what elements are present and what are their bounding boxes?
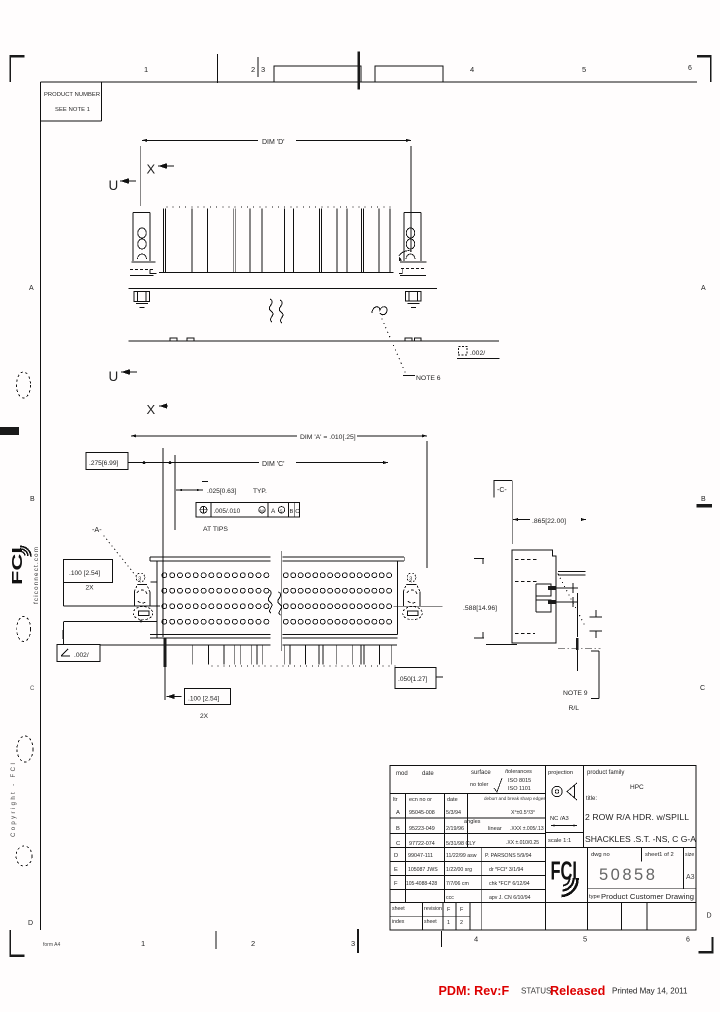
svg-text:A: A — [29, 285, 34, 292]
svg-text:2: 2 — [251, 65, 255, 74]
svg-text:3: 3 — [409, 576, 412, 582]
svg-text:2: 2 — [251, 939, 255, 948]
svg-text:mod: mod — [396, 771, 408, 777]
svg-text:1: 1 — [141, 939, 145, 948]
svg-text:D: D — [394, 853, 398, 859]
svg-text:no toler: no toler — [470, 782, 489, 788]
svg-text:DIM 'A' = .010[.25]: DIM 'A' = .010[.25] — [300, 434, 356, 441]
svg-text:NC /A3: NC /A3 — [550, 816, 569, 822]
svg-text:.002/: .002/ — [470, 350, 485, 357]
svg-text:STATUS:: STATUS: — [521, 987, 554, 996]
svg-text:form A4: form A4 — [43, 942, 60, 948]
svg-text:.025[0.63]: .025[0.63] — [207, 488, 236, 495]
svg-text:5: 5 — [583, 935, 587, 944]
svg-text:C: C — [295, 509, 299, 515]
svg-text:scale 1:1: scale 1:1 — [548, 838, 571, 844]
svg-text:M: M — [260, 508, 264, 513]
svg-text:X: X — [147, 162, 156, 177]
svg-text:C: C — [396, 841, 400, 847]
svg-text:95223-049: 95223-049 — [409, 826, 435, 832]
svg-text:PDM: Rev:F: PDM: Rev:F — [439, 984, 510, 998]
svg-text:E: E — [394, 867, 398, 873]
svg-text:apv J. CN 6/10/94: apv J. CN 6/10/94 — [489, 895, 531, 901]
svg-text:.865[22.00]: .865[22.00] — [532, 518, 566, 525]
svg-text:NOTE 9: NOTE 9 — [563, 690, 588, 697]
svg-text:DIM 'D': DIM 'D' — [262, 139, 285, 146]
svg-text:B: B — [290, 509, 294, 515]
svg-text:deburr and break sharp edges: deburr and break sharp edges — [484, 796, 546, 801]
svg-text:Released: Released — [550, 984, 605, 998]
svg-text:type: type — [589, 894, 600, 900]
svg-text:sheet: sheet — [392, 906, 405, 912]
svg-text:5/3/94: 5/3/94 — [446, 810, 461, 816]
svg-text:NOTE 6: NOTE 6 — [416, 375, 441, 382]
svg-text:ISO 8015: ISO 8015 — [508, 778, 531, 784]
svg-text:X: X — [147, 402, 156, 417]
svg-text:ccc: ccc — [446, 895, 454, 901]
svg-text:A: A — [271, 508, 276, 515]
svg-text:chk *FCI* 6/12/94: chk *FCI* 6/12/94 — [489, 881, 530, 887]
svg-text:5/31/98 CLY: 5/31/98 CLY — [446, 841, 476, 847]
svg-text:projection: projection — [548, 770, 573, 776]
svg-text:SEE NOTE 1: SEE NOTE 1 — [55, 107, 90, 113]
svg-text:.588[14.96]: .588[14.96] — [463, 605, 497, 612]
svg-text:4: 4 — [474, 935, 478, 944]
svg-text:11/22/99 asw: 11/22/99 asw — [446, 853, 477, 859]
svg-text:6: 6 — [686, 937, 690, 944]
svg-text:title:: title: — [586, 796, 597, 802]
svg-text:sheet: sheet — [424, 919, 437, 925]
svg-text:F: F — [394, 881, 398, 887]
svg-text:B: B — [30, 496, 35, 503]
svg-text:2X: 2X — [200, 713, 209, 720]
svg-text:angles: angles — [464, 819, 481, 825]
svg-text:SHACKLES .S.T. -NS, C G-A: SHACKLES .S.T. -NS, C G-A — [585, 834, 696, 844]
svg-text:.002/: .002/ — [74, 652, 89, 659]
svg-text:index: index — [392, 919, 405, 925]
svg-text:.100 [2.54]: .100 [2.54] — [69, 570, 100, 577]
svg-text:.050[1.27]: .050[1.27] — [398, 676, 427, 683]
svg-text:revision: revision — [424, 906, 442, 912]
svg-text:105087 JWS: 105087 JWS — [408, 867, 438, 873]
svg-text:3: 3 — [261, 65, 265, 74]
svg-text:-C-: -C- — [497, 487, 507, 494]
svg-text:DIM 'C': DIM 'C' — [262, 461, 285, 468]
svg-text:A: A — [701, 285, 706, 292]
svg-text:.XX ±.010/0.25: .XX ±.010/0.25 — [506, 840, 539, 846]
svg-text:date: date — [447, 797, 458, 803]
svg-text:3: 3 — [138, 576, 141, 582]
svg-text:6: 6 — [688, 65, 692, 72]
svg-text:U: U — [109, 369, 119, 384]
svg-text:PRODUCT NUMBER: PRODUCT NUMBER — [44, 92, 100, 98]
svg-text:97722-074: 97722-074 — [409, 841, 435, 847]
svg-text:/tolerances: /tolerances — [505, 769, 532, 775]
svg-text:99047-111: 99047-111 — [408, 853, 433, 859]
svg-text:.XXX ±.005/.13: .XXX ±.005/.13 — [510, 826, 544, 832]
svg-text:A3: A3 — [686, 874, 695, 881]
svg-text:1: 1 — [447, 920, 450, 926]
svg-text:2/19/96: 2/19/96 — [446, 826, 464, 832]
svg-text:D: D — [707, 913, 712, 920]
svg-text:C: C — [700, 685, 705, 692]
svg-text:1: 1 — [144, 65, 148, 74]
svg-text:dr *FCI* 3/1/94: dr *FCI* 3/1/94 — [489, 867, 523, 873]
svg-text:S: S — [280, 508, 283, 513]
svg-text:5: 5 — [582, 65, 586, 74]
svg-text:2 ROW R/A HDR. w/SPILL: 2 ROW R/A HDR. w/SPILL — [585, 812, 689, 822]
svg-text:.100 [2.54]: .100 [2.54] — [188, 696, 219, 703]
svg-text:Printed May 14, 2011: Printed May 14, 2011 — [612, 987, 688, 996]
svg-text:7/7/06 cm: 7/7/06 cm — [446, 881, 469, 887]
svg-text:ISO 1101: ISO 1101 — [508, 786, 531, 792]
svg-text:U: U — [109, 178, 119, 193]
svg-text:B: B — [396, 826, 400, 832]
svg-text:95045-008: 95045-008 — [409, 810, 435, 816]
svg-text:Product Customer Drawing: Product Customer Drawing — [601, 892, 694, 901]
svg-text:A: A — [396, 810, 400, 816]
svg-text:.275[6.99]: .275[6.99] — [89, 460, 118, 467]
svg-text:R/L: R/L — [569, 705, 580, 712]
svg-text:sheet1 of 2: sheet1 of 2 — [645, 852, 674, 858]
svg-text:2X: 2X — [86, 585, 95, 592]
svg-text:TYP.: TYP. — [253, 488, 267, 495]
svg-text:AT TIPS: AT TIPS — [203, 526, 228, 533]
svg-text:ecn no or: ecn no or — [409, 797, 432, 803]
svg-text:4: 4 — [470, 65, 474, 74]
svg-text:product family: product family — [587, 770, 624, 776]
svg-text:-A-: -A- — [92, 525, 102, 534]
svg-text:1/22/00 srg: 1/22/00 srg — [446, 867, 472, 873]
svg-text:50858: 50858 — [599, 866, 657, 884]
svg-text:HPC: HPC — [630, 784, 644, 791]
svg-text:2: 2 — [460, 920, 463, 926]
svg-text:3: 3 — [351, 939, 355, 948]
svg-text:X°±0.5°/3°: X°±0.5°/3° — [511, 810, 535, 816]
svg-text:105-4088-428: 105-4088-428 — [406, 881, 437, 887]
svg-text:.005/.010: .005/.010 — [214, 508, 241, 515]
svg-text:size: size — [685, 852, 694, 858]
svg-text:C: C — [30, 686, 35, 692]
svg-text:D: D — [28, 920, 33, 927]
svg-text:dwg no: dwg no — [591, 852, 610, 858]
svg-text:P. PARSONS 5/9/94: P. PARSONS 5/9/94 — [485, 853, 532, 859]
svg-text:linear: linear — [488, 826, 502, 832]
svg-text:surface: surface — [471, 770, 491, 776]
svg-text:ltr: ltr — [393, 797, 398, 803]
svg-text:date: date — [422, 771, 434, 777]
svg-text:fciconnect.com: fciconnect.com — [33, 547, 40, 604]
svg-text:B: B — [701, 496, 706, 503]
